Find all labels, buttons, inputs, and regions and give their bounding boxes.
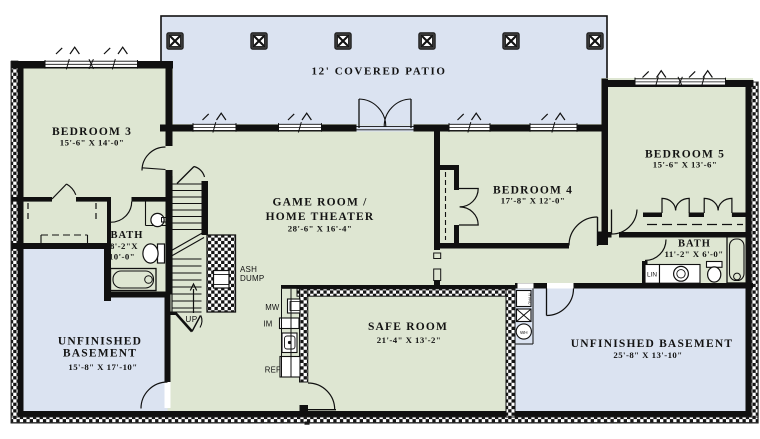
svg-text:WH: WH [520,330,528,335]
svg-text:17'-8" X 12'-0": 17'-8" X 12'-0" [501,196,565,206]
svg-text:BATH: BATH [111,230,144,241]
svg-text:BASEMENT: BASEMENT [63,348,137,360]
svg-text:LIN: LIN [647,272,657,279]
svg-text:MW: MW [265,303,280,312]
svg-text:BEDROOM 3: BEDROOM 3 [52,126,132,138]
svg-text:28'-6" X 16'-4": 28'-6" X 16'-4" [288,224,352,234]
svg-text:15'-8" X 17'-10": 15'-8" X 17'-10" [68,362,137,372]
svg-text:SAFE ROOM: SAFE ROOM [368,321,448,333]
svg-text:GAME ROOM /: GAME ROOM / [273,197,368,209]
svg-text:HVAC: HVAC [528,293,533,304]
svg-text:11'-2" X 6'-0": 11'-2" X 6'-0" [664,249,723,259]
svg-text:12' COVERED PATIO: 12' COVERED PATIO [312,66,447,78]
svg-text:IM: IM [263,320,272,329]
svg-text:UP: UP [185,315,197,324]
svg-text:21'-4" X 13'-2": 21'-4" X 13'-2" [377,335,441,345]
svg-text:REF: REF [265,366,281,375]
svg-text:10'-0": 10'-0" [109,252,135,262]
svg-text:ASH: ASH [240,265,257,274]
svg-text:DUMP: DUMP [240,274,264,283]
svg-text:8'-2"X: 8'-2"X [110,241,138,251]
svg-text:HOME THEATER: HOME THEATER [266,211,375,223]
svg-text:15'-6" X 13'-6": 15'-6" X 13'-6" [653,160,717,170]
svg-text:25'-8" X 13'-10": 25'-8" X 13'-10" [613,350,682,360]
svg-text:UNFINISHED BASEMENT: UNFINISHED BASEMENT [571,338,733,350]
svg-text:BATH: BATH [678,239,711,250]
svg-text:15'-6" X 14'-0": 15'-6" X 14'-0" [60,138,124,148]
svg-text:UNFINISHED: UNFINISHED [58,336,142,348]
